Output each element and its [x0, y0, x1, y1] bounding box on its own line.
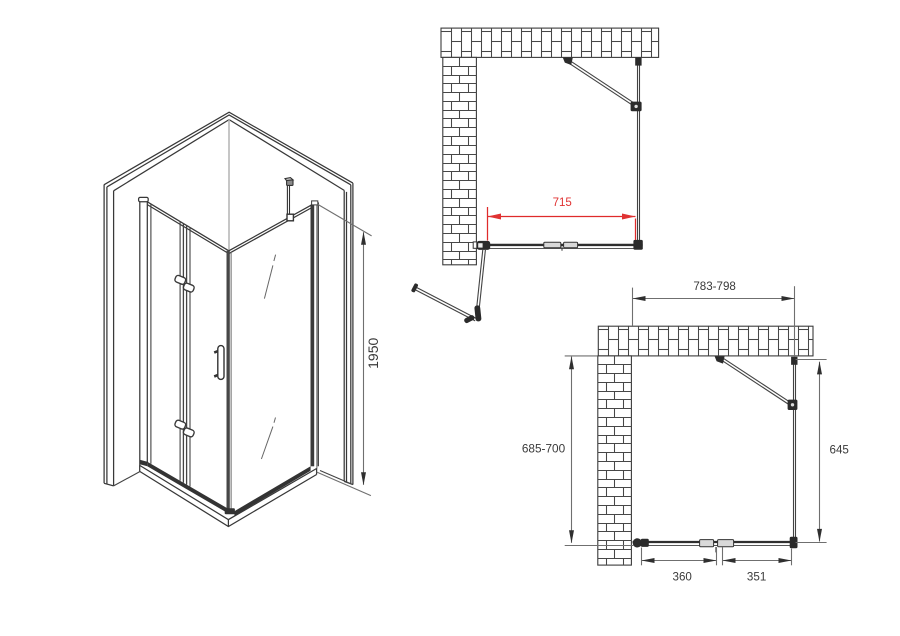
svg-text:351: 351 — [747, 571, 766, 584]
svg-text:715: 715 — [553, 197, 572, 209]
svg-text:645: 645 — [830, 444, 849, 457]
svg-text:1950: 1950 — [365, 338, 381, 369]
svg-text:685-700: 685-700 — [522, 442, 566, 456]
svg-text:783-798: 783-798 — [693, 280, 736, 293]
svg-text:360: 360 — [673, 571, 692, 584]
